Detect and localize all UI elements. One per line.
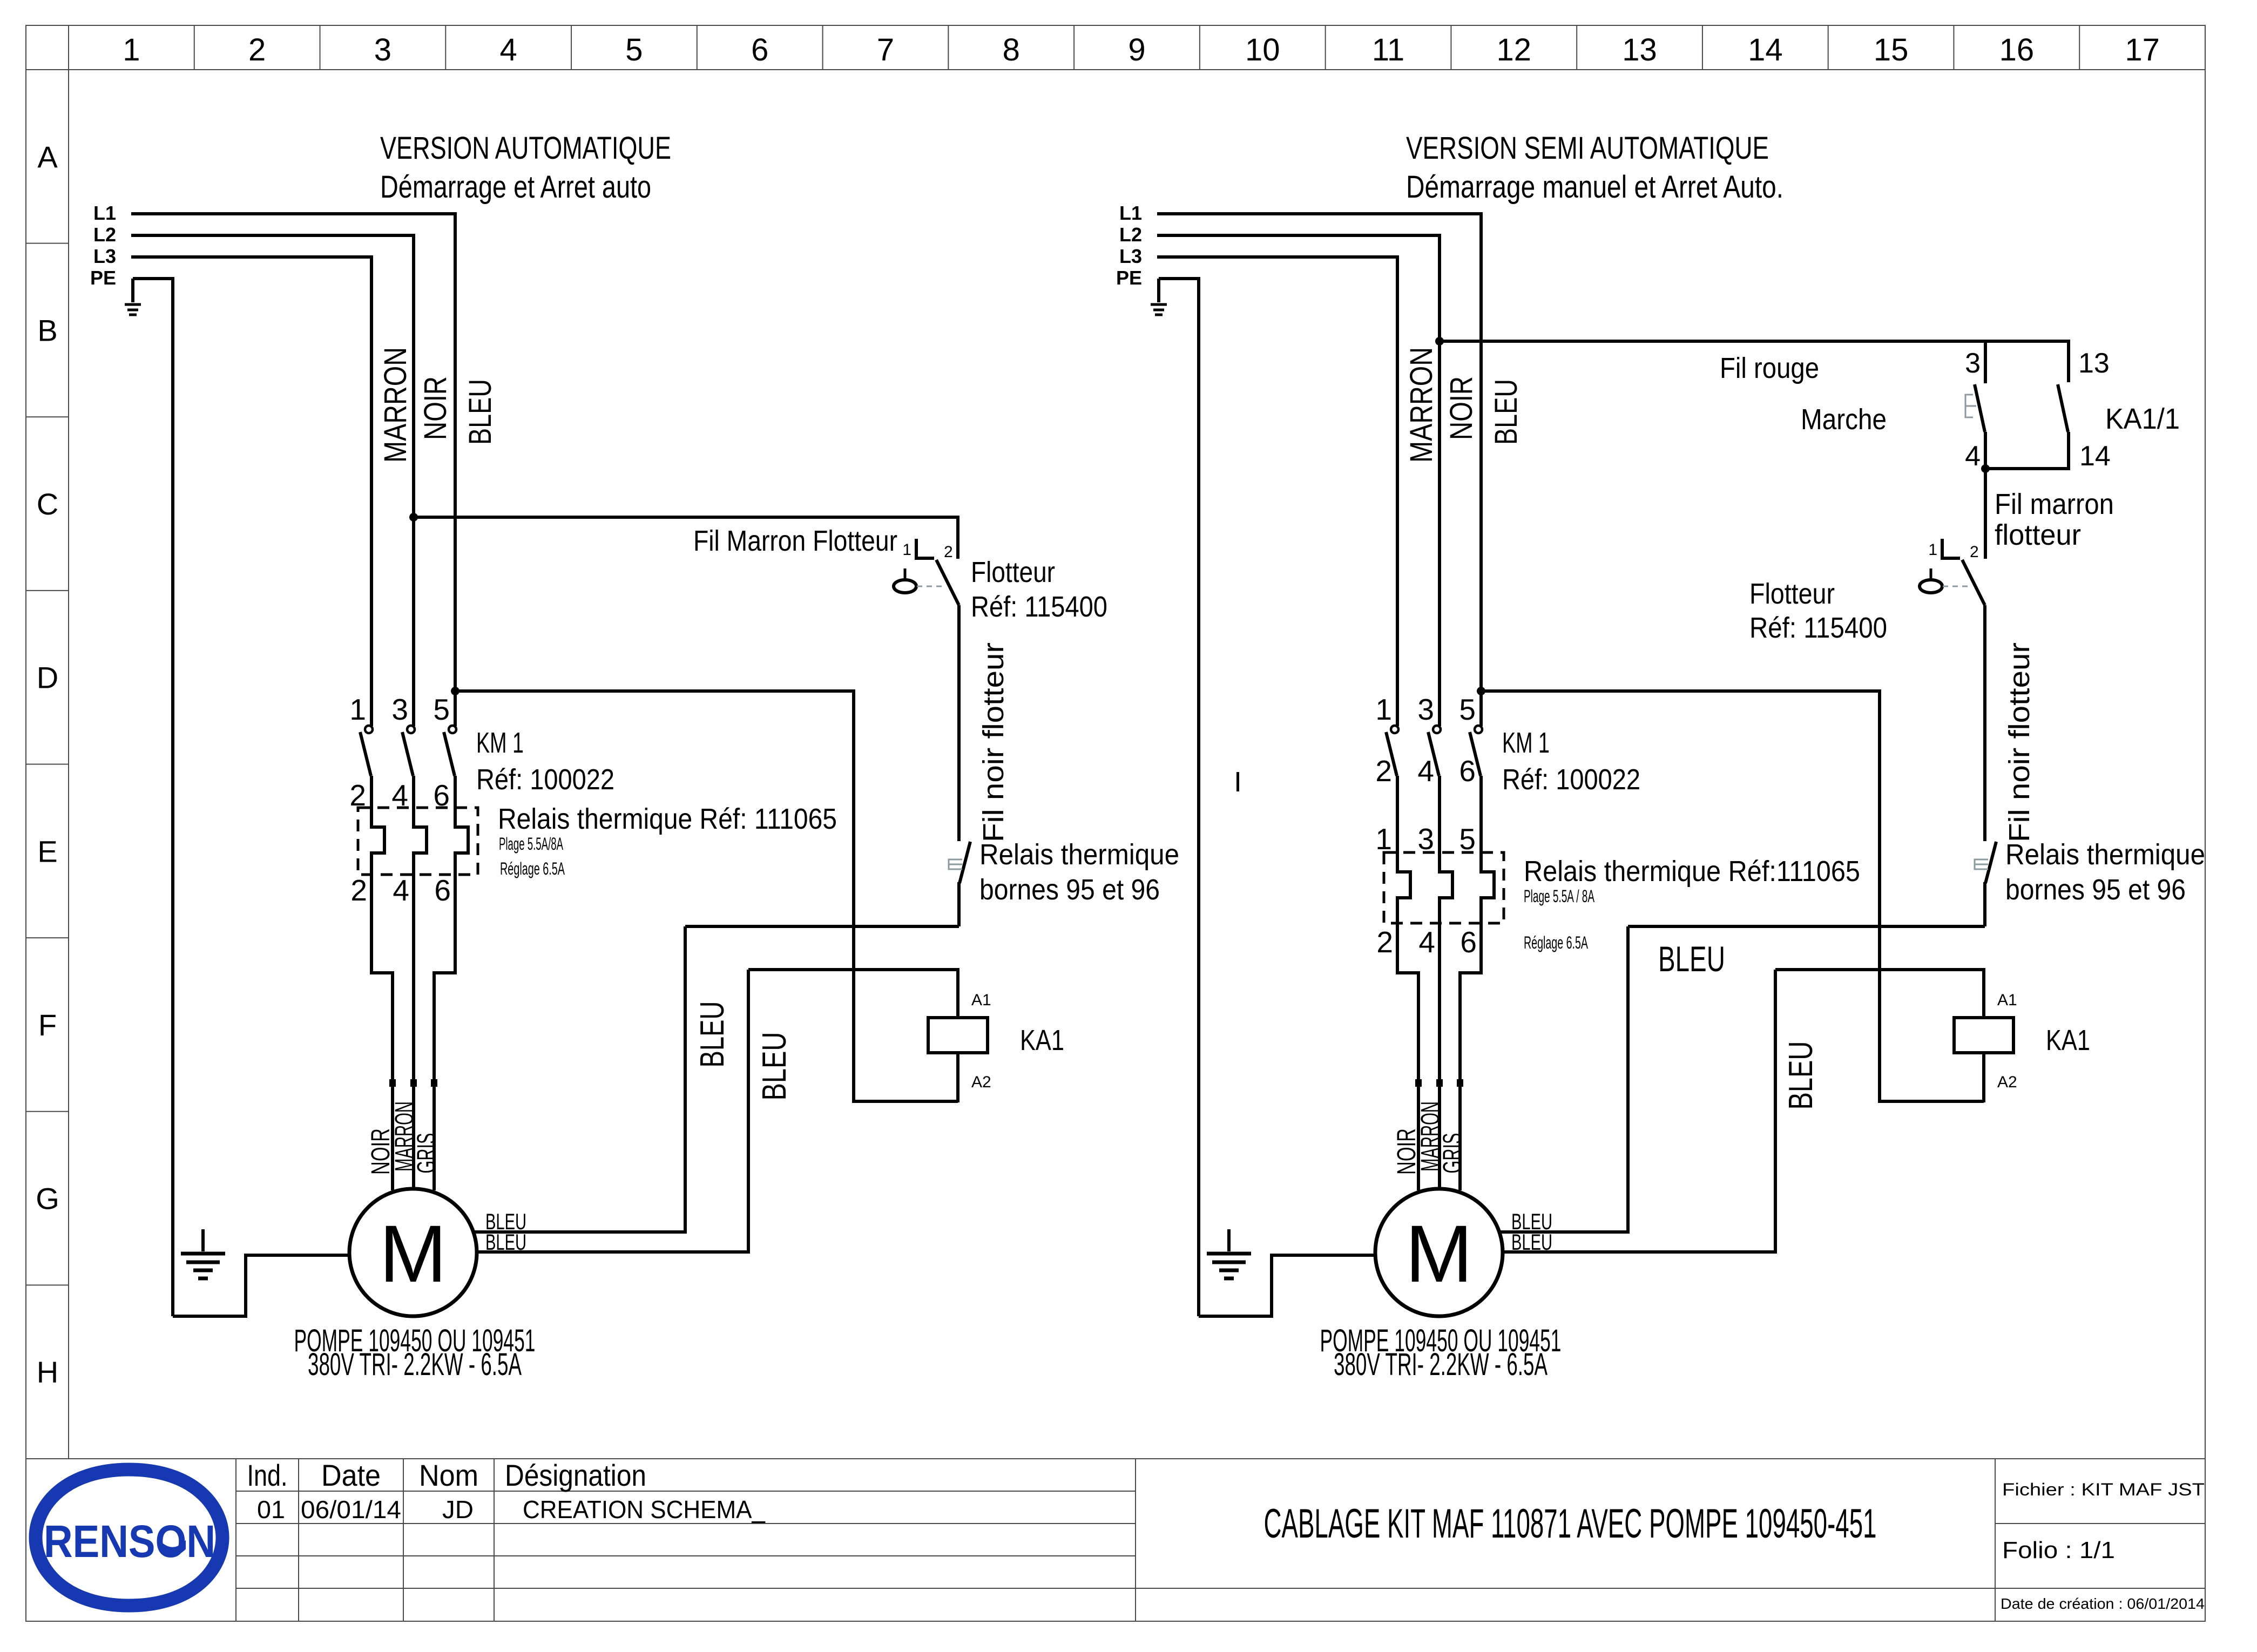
svg-text:Folio : 1/1: Folio : 1/1: [2002, 1537, 2115, 1563]
svg-text:3: 3: [374, 32, 391, 67]
svg-text:Réf: 100022: Réf: 100022: [476, 763, 614, 796]
svg-text:1: 1: [1375, 822, 1392, 856]
svg-text:6: 6: [1459, 754, 1476, 788]
svg-text:13: 13: [1622, 32, 1657, 67]
svg-text:bornes 95 et 96: bornes 95 et 96: [2005, 874, 2186, 906]
svg-text:4: 4: [1965, 441, 1981, 472]
svg-text:9: 9: [1128, 32, 1145, 67]
svg-text:BLEU: BLEU: [1658, 939, 1725, 979]
svg-text:Ind.: Ind.: [247, 1458, 288, 1492]
svg-text:01: 01: [257, 1495, 285, 1524]
svg-text:2: 2: [1375, 754, 1392, 788]
svg-text:A2: A2: [1997, 1073, 2017, 1091]
svg-text:PE: PE: [1116, 267, 1142, 289]
svg-text:16: 16: [1999, 32, 2035, 67]
svg-text:Relais thermique Réf: 111065: Relais thermique Réf: 111065: [498, 803, 837, 835]
svg-text:5: 5: [1459, 822, 1476, 856]
svg-text:5: 5: [433, 693, 450, 726]
svg-text:M: M: [380, 1208, 447, 1299]
svg-text:6: 6: [751, 32, 768, 67]
svg-text:Relais thermique: Relais thermique: [979, 838, 1179, 871]
svg-text:1: 1: [349, 693, 366, 726]
svg-text:C: C: [37, 487, 58, 521]
svg-text:Fil Marron Flotteur: Fil Marron Flotteur: [693, 525, 897, 557]
svg-text:MARRON: MARRON: [1404, 347, 1439, 463]
svg-text:1: 1: [1928, 541, 1937, 559]
svg-text:2: 2: [350, 874, 367, 907]
svg-text:11: 11: [1372, 32, 1404, 67]
svg-text:3: 3: [1417, 822, 1434, 856]
svg-text:L2: L2: [1119, 224, 1142, 246]
svg-text:Réf: 115400: Réf: 115400: [971, 591, 1107, 623]
svg-text:GRIS: GRIS: [413, 1133, 441, 1174]
svg-text:JD: JD: [442, 1495, 474, 1524]
svg-text:bornes 95 et 96: bornes 95 et 96: [979, 874, 1160, 906]
svg-text:5: 5: [1459, 693, 1476, 726]
svg-text:KA1: KA1: [1020, 1024, 1064, 1057]
svg-text:Relais thermique Réf:111065: Relais thermique Réf:111065: [1524, 855, 1860, 888]
svg-text:14: 14: [2079, 441, 2111, 472]
svg-text:1: 1: [902, 541, 911, 559]
svg-text:2: 2: [1376, 925, 1393, 959]
svg-text:1: 1: [1375, 693, 1392, 726]
svg-text:6: 6: [1460, 925, 1477, 959]
svg-text:L1: L1: [1119, 202, 1142, 224]
svg-text:PE: PE: [90, 267, 116, 289]
svg-text:2: 2: [944, 543, 953, 561]
svg-text:E: E: [37, 834, 57, 868]
svg-text:380V TRI- 2.2KW - 6.5A: 380V TRI- 2.2KW - 6.5A: [1334, 1347, 1548, 1382]
svg-text:4: 4: [1418, 925, 1435, 959]
svg-text:F: F: [38, 1008, 57, 1042]
svg-text:BLEU: BLEU: [1511, 1229, 1552, 1255]
svg-text:Date de création : 06/01/2014: Date de création : 06/01/2014: [2001, 1595, 2205, 1612]
svg-text:Fichier : KIT MAF JST: Fichier : KIT MAF JST: [2002, 1480, 2205, 1499]
svg-text:Plage 5.5A / 8A: Plage 5.5A / 8A: [1524, 886, 1594, 906]
svg-text:Plage 5.5A/8A: Plage 5.5A/8A: [499, 834, 563, 854]
svg-text:7: 7: [877, 32, 894, 67]
svg-text:VERSION SEMI AUTOMATIQUE: VERSION SEMI AUTOMATIQUE: [1406, 131, 1769, 166]
svg-text:14: 14: [1748, 32, 1783, 67]
svg-text:NOIR: NOIR: [418, 376, 453, 440]
svg-text:15: 15: [1874, 32, 1909, 67]
svg-text:Fil noir flotteur: Fil noir flotteur: [977, 642, 1010, 842]
svg-text:10: 10: [1245, 32, 1280, 67]
svg-text:8: 8: [1003, 32, 1020, 67]
svg-text:Relais thermique: Relais thermique: [2005, 838, 2205, 871]
svg-text:VERSION AUTOMATIQUE: VERSION AUTOMATIQUE: [380, 131, 671, 166]
svg-text:MARRON: MARRON: [378, 347, 413, 463]
svg-text:Réglage 6.5A: Réglage 6.5A: [1524, 933, 1588, 952]
svg-text:L3: L3: [93, 245, 116, 267]
svg-text:Fil noir flotteur: Fil noir flotteur: [2003, 642, 2036, 842]
svg-text:L2: L2: [93, 224, 116, 246]
svg-text:BLEU: BLEU: [485, 1229, 526, 1255]
svg-text:H: H: [37, 1355, 58, 1389]
svg-text:06/01/14: 06/01/14: [301, 1495, 401, 1524]
svg-text:BLEU: BLEU: [463, 379, 498, 445]
svg-text:2: 2: [248, 32, 266, 67]
svg-text:Fil marron: Fil marron: [1995, 488, 2114, 520]
svg-text:G: G: [36, 1182, 59, 1216]
svg-text:Démarrage et Arret auto: Démarrage et Arret auto: [380, 170, 651, 205]
svg-text:CABLAGE KIT MAF 110871 AVEC PO: CABLAGE KIT MAF 110871 AVEC POMPE 109450…: [1264, 1501, 1877, 1547]
svg-text:4: 4: [1417, 754, 1434, 788]
svg-text:KM 1: KM 1: [476, 727, 524, 759]
svg-text:2: 2: [1970, 543, 1979, 561]
svg-text:13: 13: [2078, 348, 2110, 379]
svg-text:A1: A1: [1997, 991, 2017, 1009]
svg-text:3: 3: [1965, 348, 1981, 379]
svg-text:A: A: [37, 140, 58, 174]
svg-text:5: 5: [625, 32, 643, 67]
svg-text:BLEU: BLEU: [756, 1032, 793, 1101]
svg-text:1: 1: [123, 32, 140, 67]
svg-text:6: 6: [434, 874, 451, 907]
svg-text:Nom: Nom: [419, 1458, 478, 1492]
svg-text:BLEU: BLEU: [1782, 1041, 1820, 1110]
svg-text:KA1: KA1: [2046, 1024, 2090, 1057]
svg-text:flotteur: flotteur: [1995, 519, 2081, 551]
svg-text:CREATION SCHEMA_: CREATION SCHEMA_: [523, 1495, 766, 1524]
svg-text:Flotteur: Flotteur: [1749, 578, 1835, 610]
svg-text:Réf: 115400: Réf: 115400: [1749, 612, 1887, 644]
svg-text:RENSON: RENSON: [44, 1516, 215, 1567]
svg-text:KA1/1: KA1/1: [2105, 403, 2180, 435]
svg-text:B: B: [37, 313, 57, 347]
svg-text:M: M: [1405, 1208, 1473, 1299]
svg-text:Démarrage manuel et Arret Aut: Démarrage manuel et Arret Auto.: [1406, 170, 1783, 205]
svg-text:3: 3: [1417, 693, 1434, 726]
svg-text:Désignation: Désignation: [505, 1458, 646, 1492]
svg-text:Réf: 100022: Réf: 100022: [1502, 763, 1640, 796]
svg-text:GRIS: GRIS: [1438, 1133, 1467, 1174]
svg-text:D: D: [37, 661, 58, 695]
svg-text:BLEU: BLEU: [1489, 379, 1524, 445]
svg-text:3: 3: [391, 693, 408, 726]
svg-text:L3: L3: [1119, 245, 1142, 267]
svg-text:380V TRI- 2.2KW - 6.5A: 380V TRI- 2.2KW - 6.5A: [308, 1347, 522, 1382]
svg-text:KM 1: KM 1: [1502, 727, 1550, 759]
svg-text:17: 17: [2125, 32, 2160, 67]
svg-text:Réglage 6.5A: Réglage 6.5A: [500, 859, 565, 878]
svg-text:A2: A2: [971, 1073, 991, 1091]
svg-text:12: 12: [1497, 32, 1532, 67]
svg-text:NOIR: NOIR: [1444, 376, 1479, 440]
svg-text:Fil rouge: Fil rouge: [1720, 352, 1819, 384]
svg-text:Date: Date: [321, 1458, 381, 1492]
svg-text:BLEU: BLEU: [694, 1001, 731, 1068]
svg-text:A1: A1: [971, 991, 991, 1009]
svg-text:4: 4: [500, 32, 517, 67]
svg-text:Marche: Marche: [1801, 403, 1887, 436]
svg-text:Flotteur: Flotteur: [971, 556, 1055, 588]
svg-text:4: 4: [393, 874, 409, 907]
svg-text:L1: L1: [93, 202, 116, 224]
